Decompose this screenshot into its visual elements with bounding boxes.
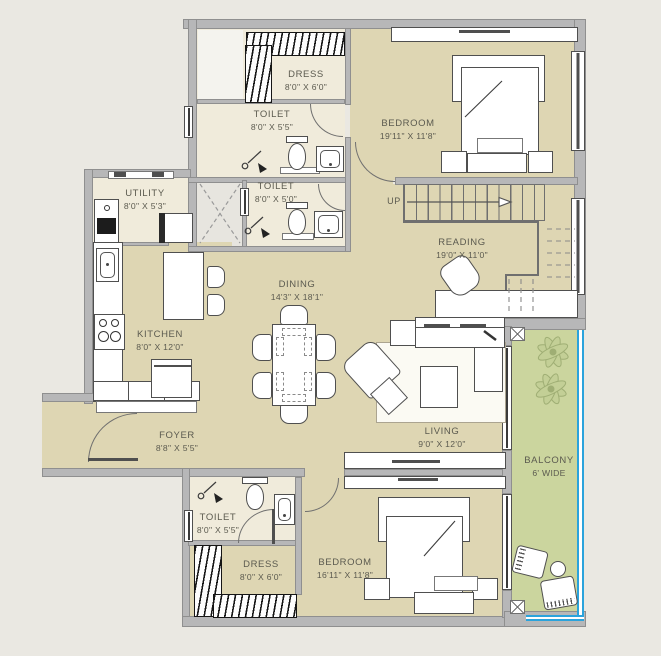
drain-box	[510, 600, 525, 614]
coffee-table	[420, 366, 458, 408]
fridge-handle	[154, 365, 191, 367]
room-dims: 8'8" X 5'5"	[156, 443, 198, 455]
wall	[345, 137, 351, 252]
stair-edge	[403, 221, 539, 223]
room-label-living: LIVING 9'0" X 12'0"	[418, 426, 465, 450]
fridge	[151, 359, 192, 398]
room-label-dress-bottom: DRESS 8'0" X 6'0"	[240, 559, 282, 583]
sofa-seat	[415, 327, 505, 348]
sliding-window	[502, 494, 512, 590]
dining-chair	[316, 334, 336, 361]
dining-chair	[280, 404, 308, 424]
toilet-tank	[242, 477, 268, 484]
wall	[295, 477, 302, 595]
room-name: READING	[436, 237, 488, 250]
wall	[345, 28, 351, 105]
window-frame	[506, 348, 508, 448]
up-text: UP	[387, 195, 401, 207]
room-name: TOILET	[197, 512, 239, 525]
room-dims: 8'0" X 5'3"	[124, 201, 166, 213]
wall	[84, 169, 93, 404]
room-name: BALCONY	[524, 455, 574, 468]
dining-chair	[280, 305, 308, 325]
window	[571, 198, 585, 295]
sink-basin	[278, 498, 291, 521]
room-name: FOYER	[156, 430, 198, 443]
place-setting	[304, 337, 312, 356]
sink-drain	[329, 163, 332, 166]
wall	[42, 468, 305, 477]
stair-edge	[537, 221, 539, 276]
kitchen-island	[163, 252, 204, 320]
room-dims: 9'0" X 12'0"	[418, 439, 465, 451]
room-label-foyer: FOYER 8'8" X 5'5"	[156, 430, 198, 454]
balcony-railing	[526, 615, 584, 621]
kitchen-sill	[96, 401, 197, 413]
sofa-cushion	[424, 324, 450, 327]
window	[184, 106, 193, 138]
window-frame	[577, 53, 580, 149]
room-dims: 8'0" X 12'0"	[136, 342, 183, 354]
toilet-wc	[246, 484, 264, 510]
chair-slats	[515, 548, 526, 571]
room-label-toilet-top: TOILET 8'0" X 5'5"	[251, 109, 293, 133]
toilet-sink	[274, 494, 295, 525]
stool	[207, 294, 225, 316]
room-dims: 14'3" X 18'1"	[271, 292, 323, 304]
place-setting	[282, 394, 306, 402]
utility-shelf-item	[114, 172, 126, 177]
stool	[207, 266, 225, 288]
floor-plan: DRESS 8'0" X 6'0" TOILET 8'0" X 5'5" BED…	[0, 0, 661, 656]
toilet-sink	[316, 146, 344, 172]
window	[184, 510, 193, 542]
dining-chair	[316, 372, 336, 399]
wall	[188, 246, 351, 252]
room-label-bedroom-bottom: BEDROOM 16'11" X 11'8"	[317, 557, 373, 581]
room-name: TOILET	[255, 181, 297, 194]
room-name: DINING	[271, 279, 323, 292]
sink-drain	[106, 263, 109, 266]
window-frame	[506, 496, 508, 588]
stove-burner	[98, 331, 109, 342]
cabinet-divider	[128, 382, 129, 400]
room-label-toilet-bottom: TOILET 8'0" X 5'5"	[197, 512, 239, 536]
floor-shaft	[197, 180, 243, 247]
room-label-dining: DINING 14'3" X 18'1"	[271, 279, 323, 303]
stove-burner	[110, 331, 121, 342]
sofa-chaise	[474, 347, 503, 392]
room-label-bedroom-top: BEDROOM 19'11" X 11'8"	[380, 118, 436, 142]
room-dims: 6' WIDE	[524, 468, 574, 480]
window-frame	[188, 512, 190, 540]
dining-chair	[252, 372, 272, 399]
nightstand	[528, 151, 553, 173]
balcony-table	[550, 561, 566, 577]
wall	[344, 469, 506, 476]
room-name: KITCHEN	[136, 329, 183, 342]
room-dims: 19'11" X 11'8"	[380, 131, 436, 143]
staircase	[403, 184, 545, 221]
stove-burner	[99, 319, 107, 327]
drain-box	[510, 327, 525, 341]
window-frame	[188, 108, 190, 136]
room-label-kitchen: KITCHEN 8'0" X 12'0"	[136, 329, 183, 353]
balcony-chair	[540, 575, 579, 610]
room-label-reading: READING 19'0" X 11'0"	[436, 237, 488, 261]
dining-chair	[252, 334, 272, 361]
tv-unit-handle	[392, 460, 440, 463]
sofa-cushion	[460, 324, 486, 327]
window	[240, 188, 249, 216]
stairs-up-label: UP	[387, 195, 401, 207]
room-name: LIVING	[418, 426, 465, 439]
room-name: BEDROOM	[380, 118, 436, 131]
appliance-panel	[159, 213, 165, 243]
room-name: DRESS	[240, 559, 282, 572]
wardrobe	[245, 45, 272, 103]
door-leaf	[272, 509, 275, 544]
kitchen-sink	[96, 248, 119, 282]
room-name: UTILITY	[124, 188, 166, 201]
bed-blanket	[434, 576, 478, 591]
sink-drain	[283, 514, 286, 517]
room-name: BEDROOM	[317, 557, 373, 570]
toilet-wc	[288, 209, 306, 235]
place-setting	[276, 337, 284, 356]
nightstand	[441, 151, 467, 173]
stove-burner	[111, 319, 119, 327]
sink-drain	[327, 229, 330, 232]
room-label-toilet-mid: TOILET 8'0" X 5'0"	[255, 181, 297, 205]
room-dims: 8'0" X 6'0"	[285, 82, 327, 94]
bed-blanket	[477, 138, 523, 153]
balcony-railing	[577, 330, 584, 618]
toilet-wc	[288, 143, 306, 170]
room-name: DRESS	[285, 69, 327, 82]
window	[571, 51, 585, 151]
duct-void	[198, 30, 243, 101]
room-label-dress-top: DRESS 8'0" X 6'0"	[285, 69, 327, 93]
place-setting	[276, 372, 284, 391]
window-frame	[459, 30, 511, 33]
wall	[42, 393, 94, 402]
place-setting	[304, 372, 312, 391]
room-dims: 8'0" X 5'0"	[255, 194, 297, 206]
place-setting	[282, 328, 306, 336]
washer-knob	[104, 205, 110, 211]
room-label-balcony: BALCONY 6' WIDE	[524, 455, 574, 479]
floor-hall	[351, 180, 393, 252]
window	[391, 27, 578, 42]
stair-edge	[505, 274, 538, 276]
room-dims: 8'0" X 5'5"	[251, 122, 293, 134]
room-dims: 8'0" X 6'0"	[240, 572, 282, 584]
window-frame	[577, 200, 580, 293]
door-leaf	[88, 458, 138, 461]
toilet-tank	[286, 136, 308, 143]
bed-bench	[414, 592, 474, 614]
wall	[182, 468, 190, 627]
room-name: TOILET	[251, 109, 293, 122]
bed-bench	[467, 153, 527, 173]
nightstand	[364, 578, 390, 600]
side-table	[390, 320, 416, 346]
window-frame	[244, 190, 246, 214]
toilet-sink	[314, 211, 343, 238]
room-label-utility: UTILITY 8'0" X 5'3"	[124, 188, 166, 212]
room-dims: 19'0" X 11'0"	[436, 250, 488, 262]
storage-handle	[398, 478, 438, 481]
room-dims: 16'11" X 11'8"	[317, 570, 373, 582]
room-dims: 8'0" X 5'5"	[197, 525, 239, 537]
washer-drum	[97, 218, 116, 234]
wardrobe	[213, 594, 297, 618]
utility-shelf-item	[152, 172, 164, 177]
